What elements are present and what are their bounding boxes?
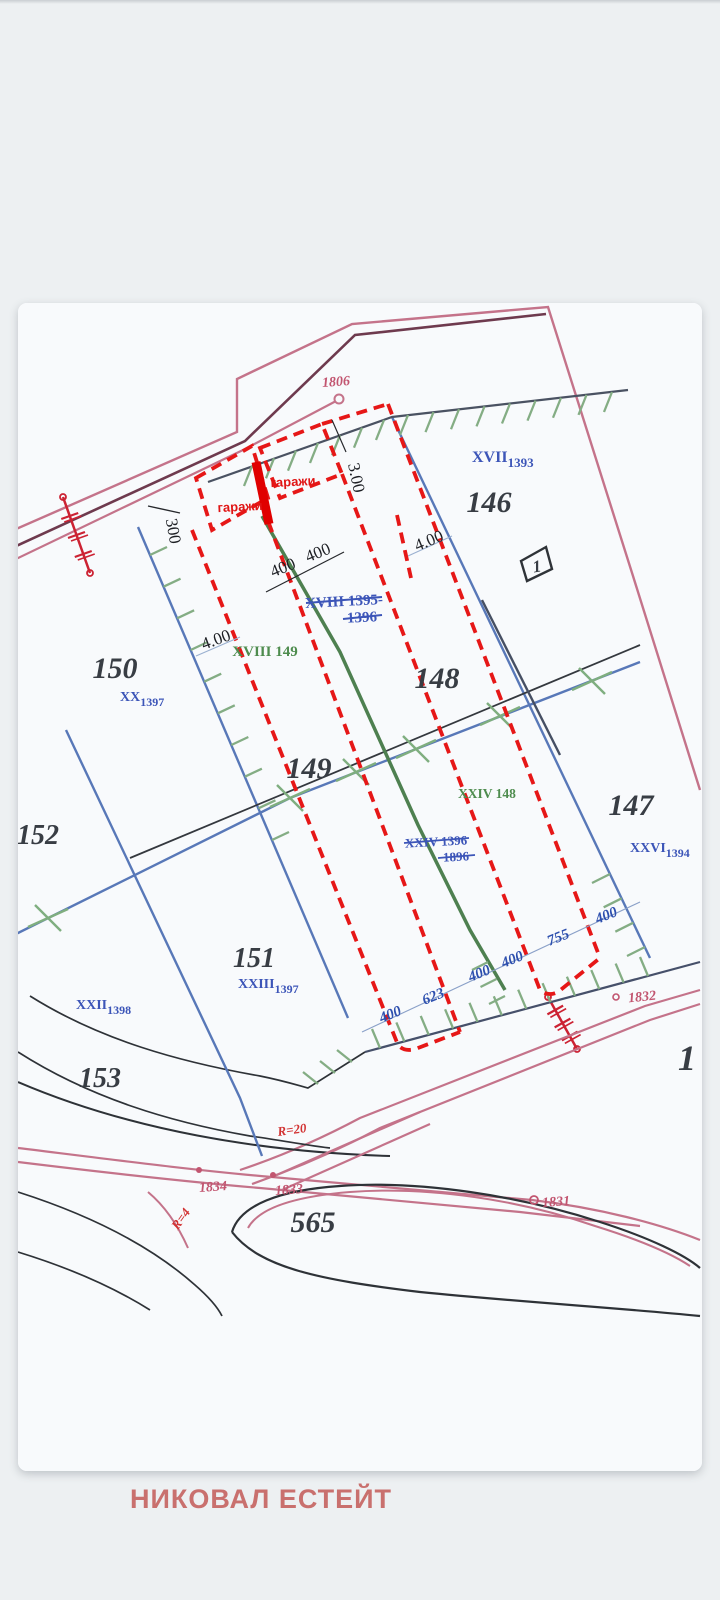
parcel-number-150: 150	[93, 652, 138, 685]
top-shadow-divider	[0, 0, 720, 4]
garage-label-right: гаражи	[270, 473, 316, 490]
parcel-number-153: 153	[79, 1063, 121, 1094]
parcel-number-147: 147	[609, 789, 655, 822]
point-1831: 1831	[542, 1194, 571, 1211]
point-1832: 1832	[627, 989, 656, 1007]
page: 1 146 147 148 149 150 151 152 153 565 1 …	[0, 0, 720, 1600]
parcel-number-151: 151	[233, 943, 275, 974]
survey-point-1806-marker	[335, 395, 344, 404]
cadastral-label-xviii-green: XVIII 149	[232, 644, 297, 660]
parcel-number-clipped: 1	[678, 1038, 696, 1078]
point-1806: 1806	[322, 374, 351, 391]
parcel-number-148: 148	[415, 662, 460, 695]
agency-brand[interactable]: НИКОВАЛ ЕСТЕЙТ	[130, 1484, 392, 1515]
parcel-number-152: 152	[18, 820, 59, 851]
parcel-number-149: 149	[287, 752, 332, 785]
point-1833: 1833	[275, 1182, 304, 1199]
parcel-number-565: 565	[291, 1206, 336, 1239]
parcel-number-146: 146	[467, 486, 512, 519]
cadastral-map: 1 146 147 148 149 150 151 152 153 565 1 …	[18, 303, 702, 1471]
map-image[interactable]: 1 146 147 148 149 150 151 152 153 565 1 …	[18, 303, 702, 1471]
cadastral-label-xxiv-green: XXIV 148	[458, 786, 516, 801]
garage-label-left: гаражи	[217, 498, 263, 515]
point-1834: 1834	[199, 1179, 228, 1196]
